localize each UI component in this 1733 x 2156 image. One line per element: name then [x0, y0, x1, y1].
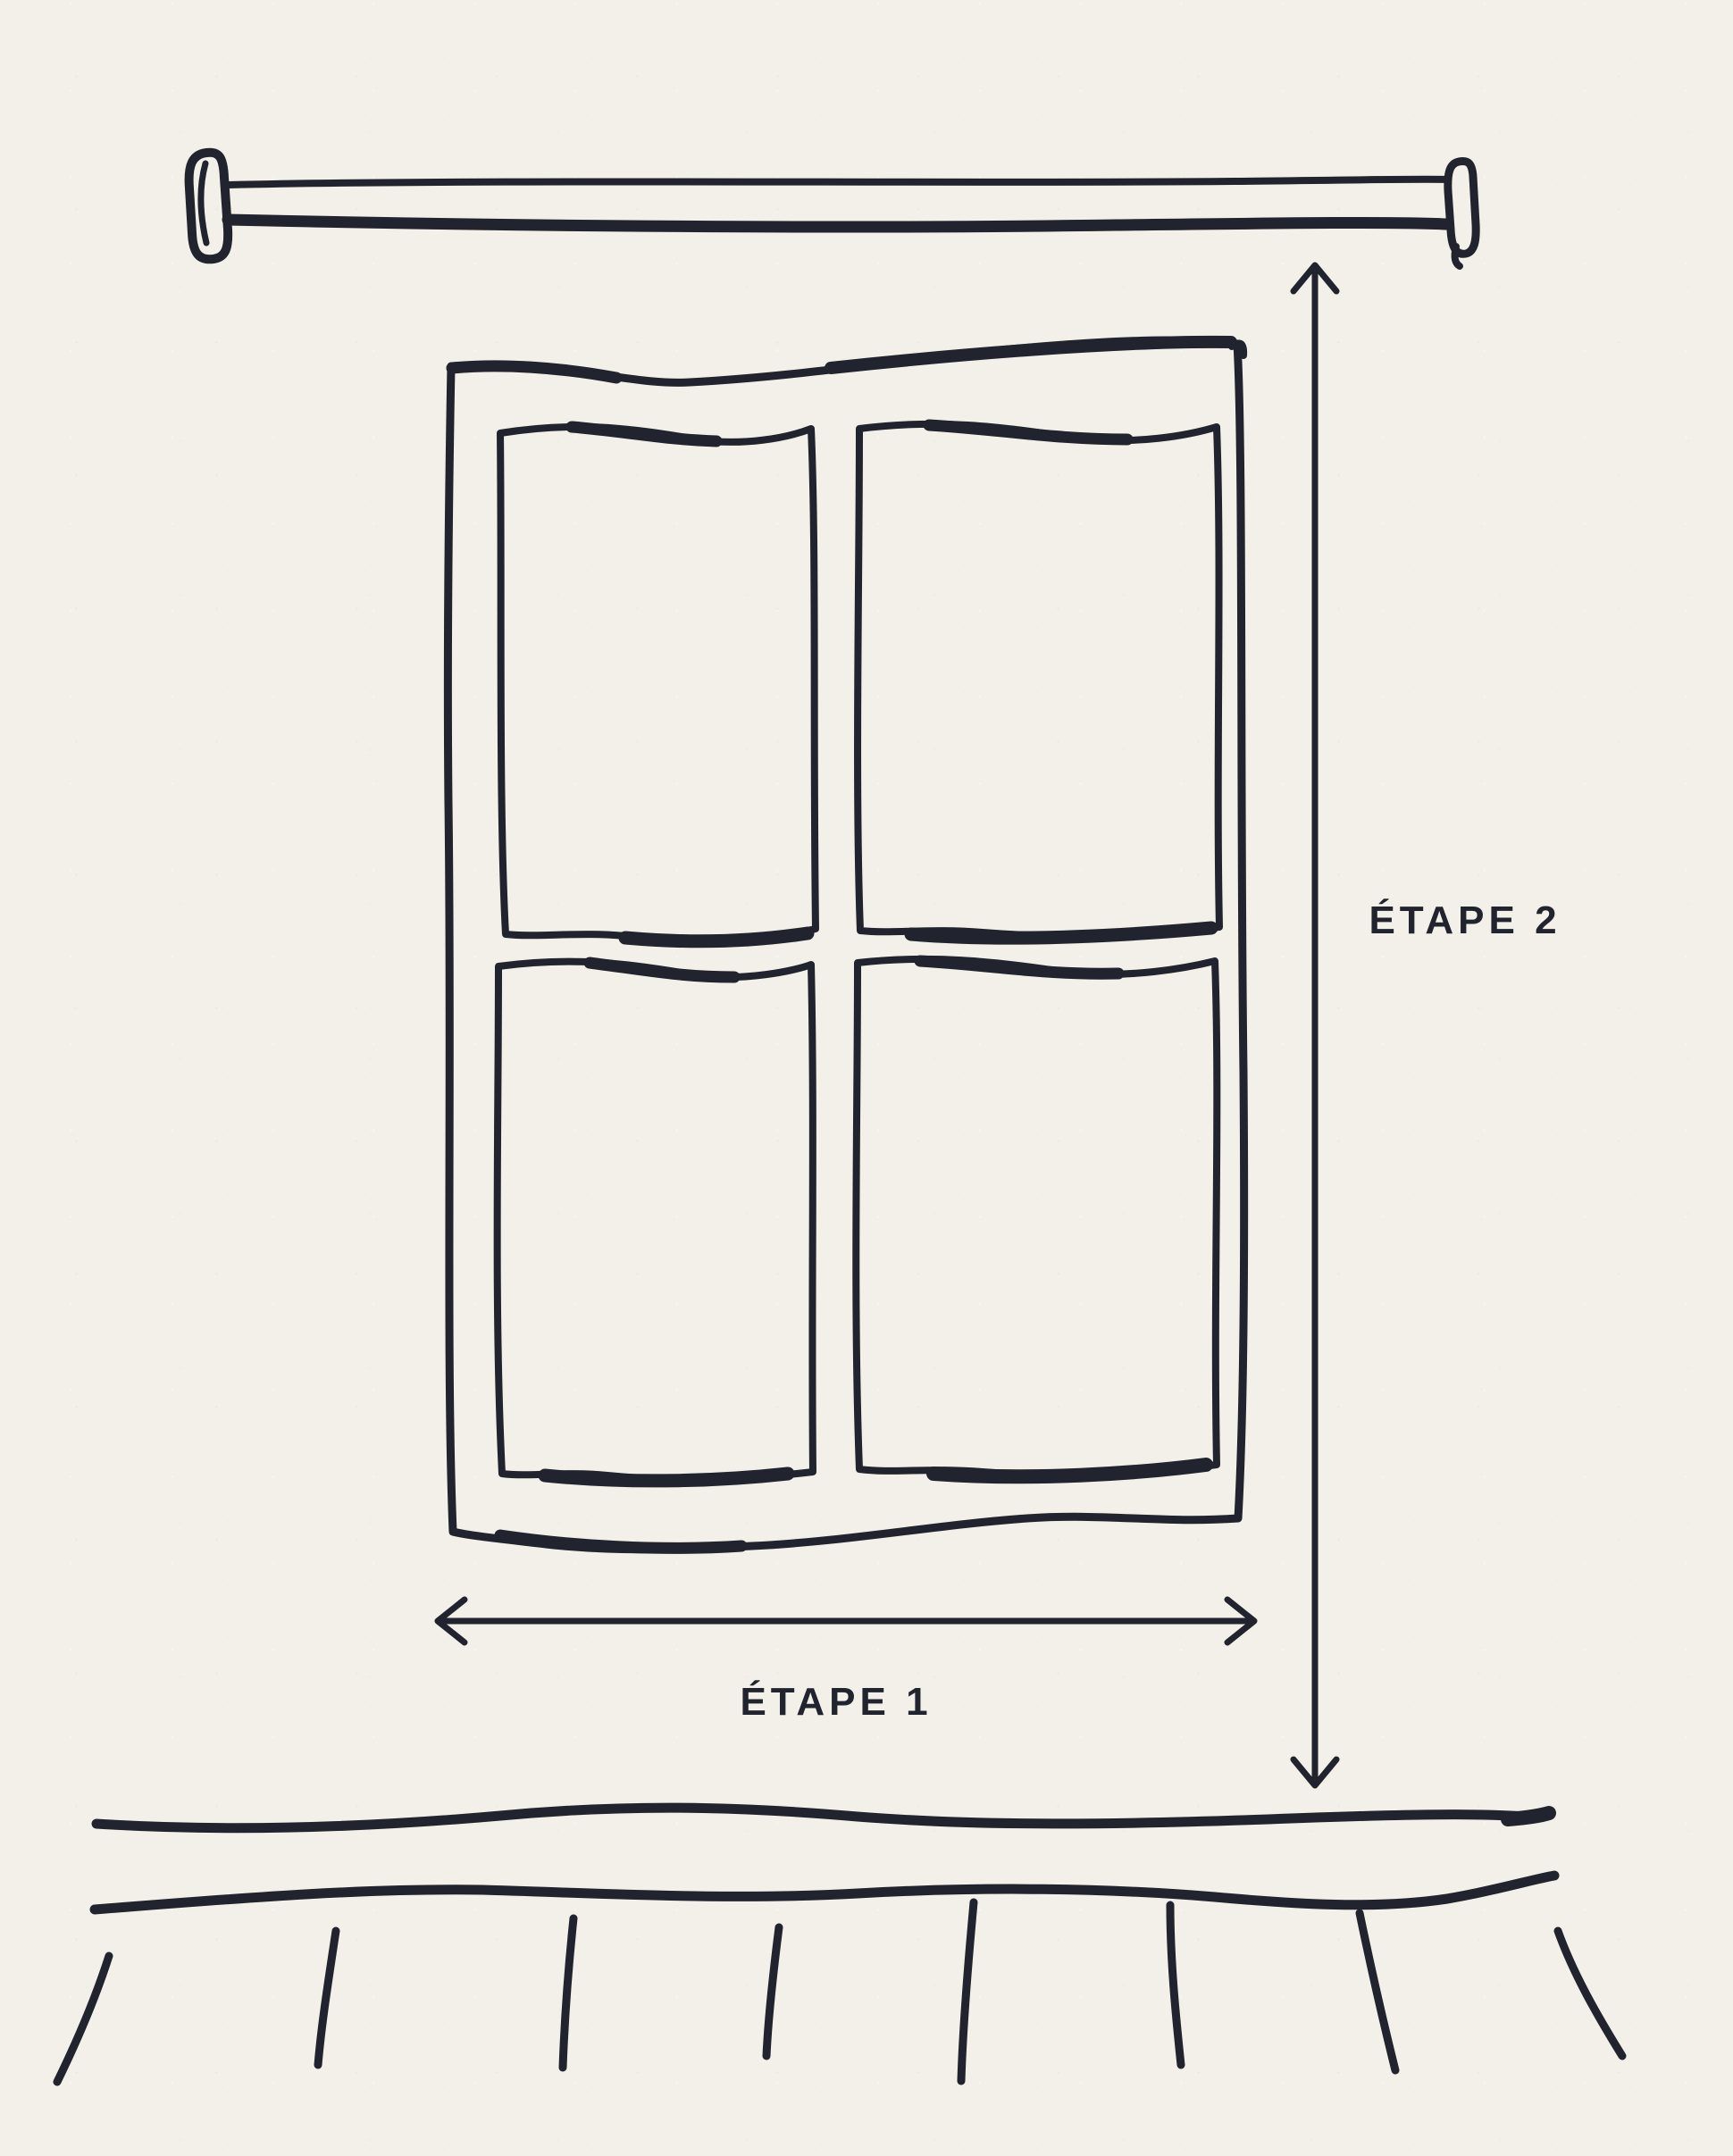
floor-line-top-end-blob — [1508, 1813, 1549, 1819]
pane-bl-top-accent — [590, 963, 734, 977]
window-pane-top-left — [500, 427, 816, 940]
window-pane-bottom-right — [856, 959, 1217, 1475]
rod-left-finial-inner-line — [201, 163, 206, 243]
pane-bl-bottom-accent — [545, 1474, 788, 1481]
floor-icon — [57, 1808, 1622, 2082]
curtain-measuring-diagram: ÉTAPE 1 ÉTAPE 2 — [0, 0, 1733, 2156]
window-outer-frame — [448, 340, 1243, 1550]
floor-line-bottom — [95, 1876, 1554, 1909]
floor-hatch-1 — [57, 1956, 109, 2082]
floor-hatch-7 — [1360, 1913, 1395, 2070]
width-measure-arrow — [438, 1600, 1254, 1642]
floor-hatch-2 — [318, 1931, 336, 2065]
window-frame-accent-top-left — [452, 366, 616, 378]
floor-hatch-5 — [961, 1902, 974, 2081]
window-frame-accent-top-right — [831, 342, 1231, 368]
floor-hatch-6 — [1170, 1905, 1181, 2065]
window-pane-top-right — [858, 424, 1219, 936]
pane-br-bottom-accent — [933, 1465, 1206, 1476]
curtain-rod-icon — [189, 153, 1477, 266]
window-pane-bottom-left — [498, 962, 813, 1480]
pane-tr-top-accent — [929, 425, 1127, 439]
rod-right-finial — [1448, 161, 1476, 254]
step-1-label: ÉTAPE 1 — [740, 1679, 932, 1724]
rod-bottom-edge — [228, 220, 1446, 227]
floor-hatch-8 — [1558, 1931, 1622, 2056]
diagram-canvas: ÉTAPE 1 ÉTAPE 2 — [0, 0, 1733, 2156]
rod-top-edge — [229, 180, 1447, 185]
height-measure-arrow — [1293, 265, 1336, 1785]
step-2-label: ÉTAPE 2 — [1369, 898, 1561, 942]
floor-hatch-4 — [766, 1927, 779, 2056]
floor-hatch-3 — [563, 1918, 573, 2068]
pane-tl-bottom-accent — [625, 933, 808, 941]
window-icon — [448, 340, 1243, 1550]
floor-line-top — [96, 1808, 1538, 1828]
